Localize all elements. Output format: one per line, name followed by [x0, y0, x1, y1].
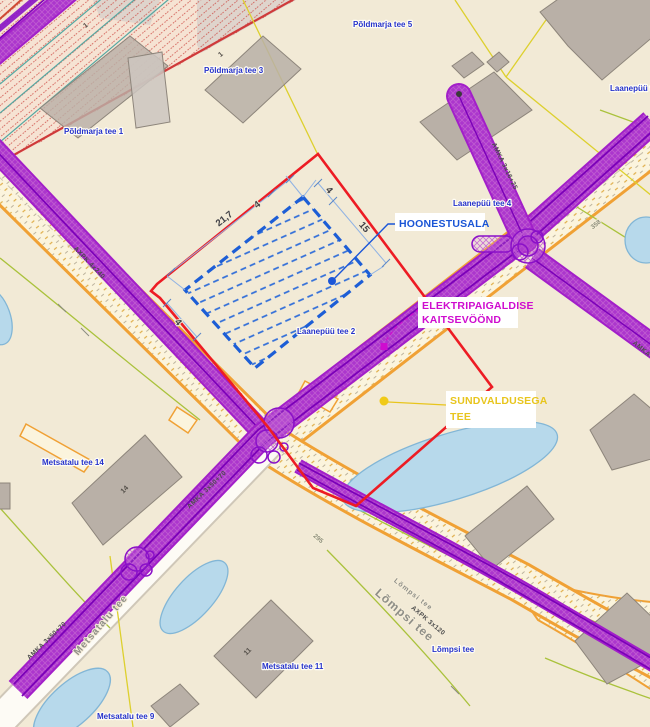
cable-end-point — [456, 91, 462, 97]
address-label: Lõmpsi tee — [432, 645, 475, 654]
address-label: Laanepüü tee 4 — [453, 199, 512, 208]
map-canvas[interactable]: 21,7 4 4 15 4 Põldmarja tee 5 Põldmarja … — [0, 0, 650, 727]
building — [0, 483, 10, 509]
kaitsevoond-label-line2: KAITSEVÖÖND — [422, 313, 501, 326]
building — [128, 52, 170, 128]
address-label: Põldmarja tee 1 — [64, 127, 124, 136]
kaitsevoond-marker — [381, 343, 388, 350]
hoonestusala-label: HOONESTUSALA — [399, 218, 490, 230]
sundvaldus-marker-dot — [380, 397, 389, 406]
address-label: Metsatalu tee 11 — [262, 662, 324, 671]
address-label: Põldmarja tee 5 — [353, 20, 413, 29]
address-label: Põldmarja tee 3 — [204, 66, 264, 75]
address-label: Laanepüü tee — [610, 84, 650, 93]
sundvaldus-label-line2: TEE — [450, 411, 471, 423]
address-label: Metsatalu tee 14 — [42, 458, 104, 467]
address-label: Laanepüü tee 2 — [297, 327, 356, 336]
kaitsevoond-label-line1: ELEKTRIPAIGALDISE — [422, 300, 534, 312]
address-label: Metsatalu tee 9 — [97, 712, 155, 721]
sundvaldus-label-line1: SUNDVALDUSEGA — [450, 395, 548, 407]
map-viewport[interactable]: 21,7 4 4 15 4 Põldmarja tee 5 Põldmarja … — [0, 0, 650, 727]
